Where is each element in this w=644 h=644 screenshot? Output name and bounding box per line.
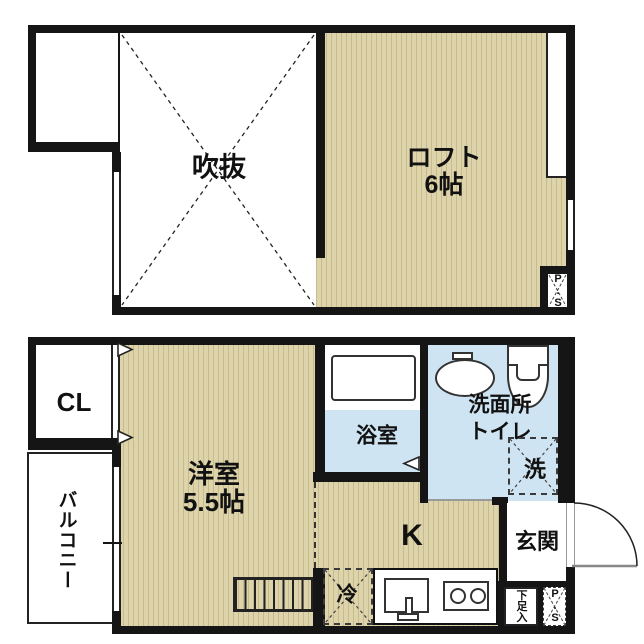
washroom-label: 洗面所 bbox=[469, 395, 532, 418]
kitchen-faucet-base bbox=[397, 613, 419, 621]
wall-upper-small-room-right-line bbox=[118, 33, 120, 142]
wall-upper-small-room-left bbox=[28, 25, 36, 152]
wall-upper-bottom bbox=[112, 307, 575, 315]
entrance-label: 玄関 bbox=[515, 530, 559, 554]
window-upper-right bbox=[566, 200, 575, 250]
void-label: 吹抜 bbox=[192, 153, 246, 182]
loft-name: ロフト bbox=[406, 144, 481, 172]
fridge-label: 冷 bbox=[337, 585, 358, 608]
toilet-tank bbox=[507, 345, 549, 366]
bathroom-door-arrow bbox=[402, 456, 420, 471]
window-center-tick bbox=[103, 542, 122, 544]
stove-burner-right bbox=[470, 588, 486, 604]
window-balcony bbox=[112, 467, 121, 612]
wall-bathroom-left bbox=[315, 337, 325, 482]
loft-label: ロフト 6帖 bbox=[406, 145, 481, 199]
loft-size: 6帖 bbox=[425, 171, 464, 199]
loft-ladder bbox=[233, 577, 314, 612]
wall-upper-right bbox=[566, 25, 575, 315]
western-room-name: 洋室 bbox=[188, 459, 240, 489]
closet-door-arrow-top bbox=[117, 342, 134, 357]
bathroom-label: 浴室 bbox=[356, 426, 398, 449]
wall-closet-left bbox=[28, 337, 36, 450]
entrance-door-swing bbox=[566, 498, 644, 572]
closet-door bbox=[111, 345, 120, 438]
kitchen-label: K bbox=[401, 520, 423, 552]
toilet-seat bbox=[516, 364, 540, 381]
loft-open-strip bbox=[546, 33, 567, 178]
wall-lower-top bbox=[28, 337, 575, 345]
bathtub bbox=[331, 355, 416, 401]
closet-door-arrow-bottom bbox=[117, 430, 134, 445]
wall-closet-bottom bbox=[28, 438, 121, 450]
wall-lower-right-upper bbox=[566, 337, 575, 503]
washroom-door-opening bbox=[428, 499, 492, 501]
wall-entrance-left bbox=[499, 497, 507, 583]
ps-upper-label: P.S bbox=[552, 273, 564, 309]
stove-burner-left bbox=[450, 588, 466, 604]
wall-upper-top bbox=[28, 25, 575, 33]
wall-upper-small-room-bottom bbox=[28, 142, 120, 152]
wall-upper-left-a bbox=[112, 152, 121, 174]
western-room-size: 5.5帖 bbox=[183, 487, 245, 517]
kitchen-room-boundary bbox=[314, 482, 316, 568]
wall-void-loft-divider bbox=[316, 25, 325, 258]
closet-label: CL bbox=[57, 388, 92, 416]
window-upper-left bbox=[112, 172, 121, 297]
floorplan: 吹抜 ロフト 6帖 P.S bbox=[0, 0, 644, 644]
ps-lower-label: P.S bbox=[549, 588, 561, 624]
balcony-label: バルコニー bbox=[53, 490, 80, 590]
wall-lower-right-lower bbox=[566, 567, 575, 634]
western-room-label: 洋室 5.5帖 bbox=[183, 460, 245, 516]
shoe-box-label: 下足入 bbox=[513, 590, 529, 623]
washbasin bbox=[435, 359, 495, 397]
washer-label: 洗 bbox=[524, 458, 546, 482]
wall-bathroom-bottom bbox=[313, 472, 428, 482]
